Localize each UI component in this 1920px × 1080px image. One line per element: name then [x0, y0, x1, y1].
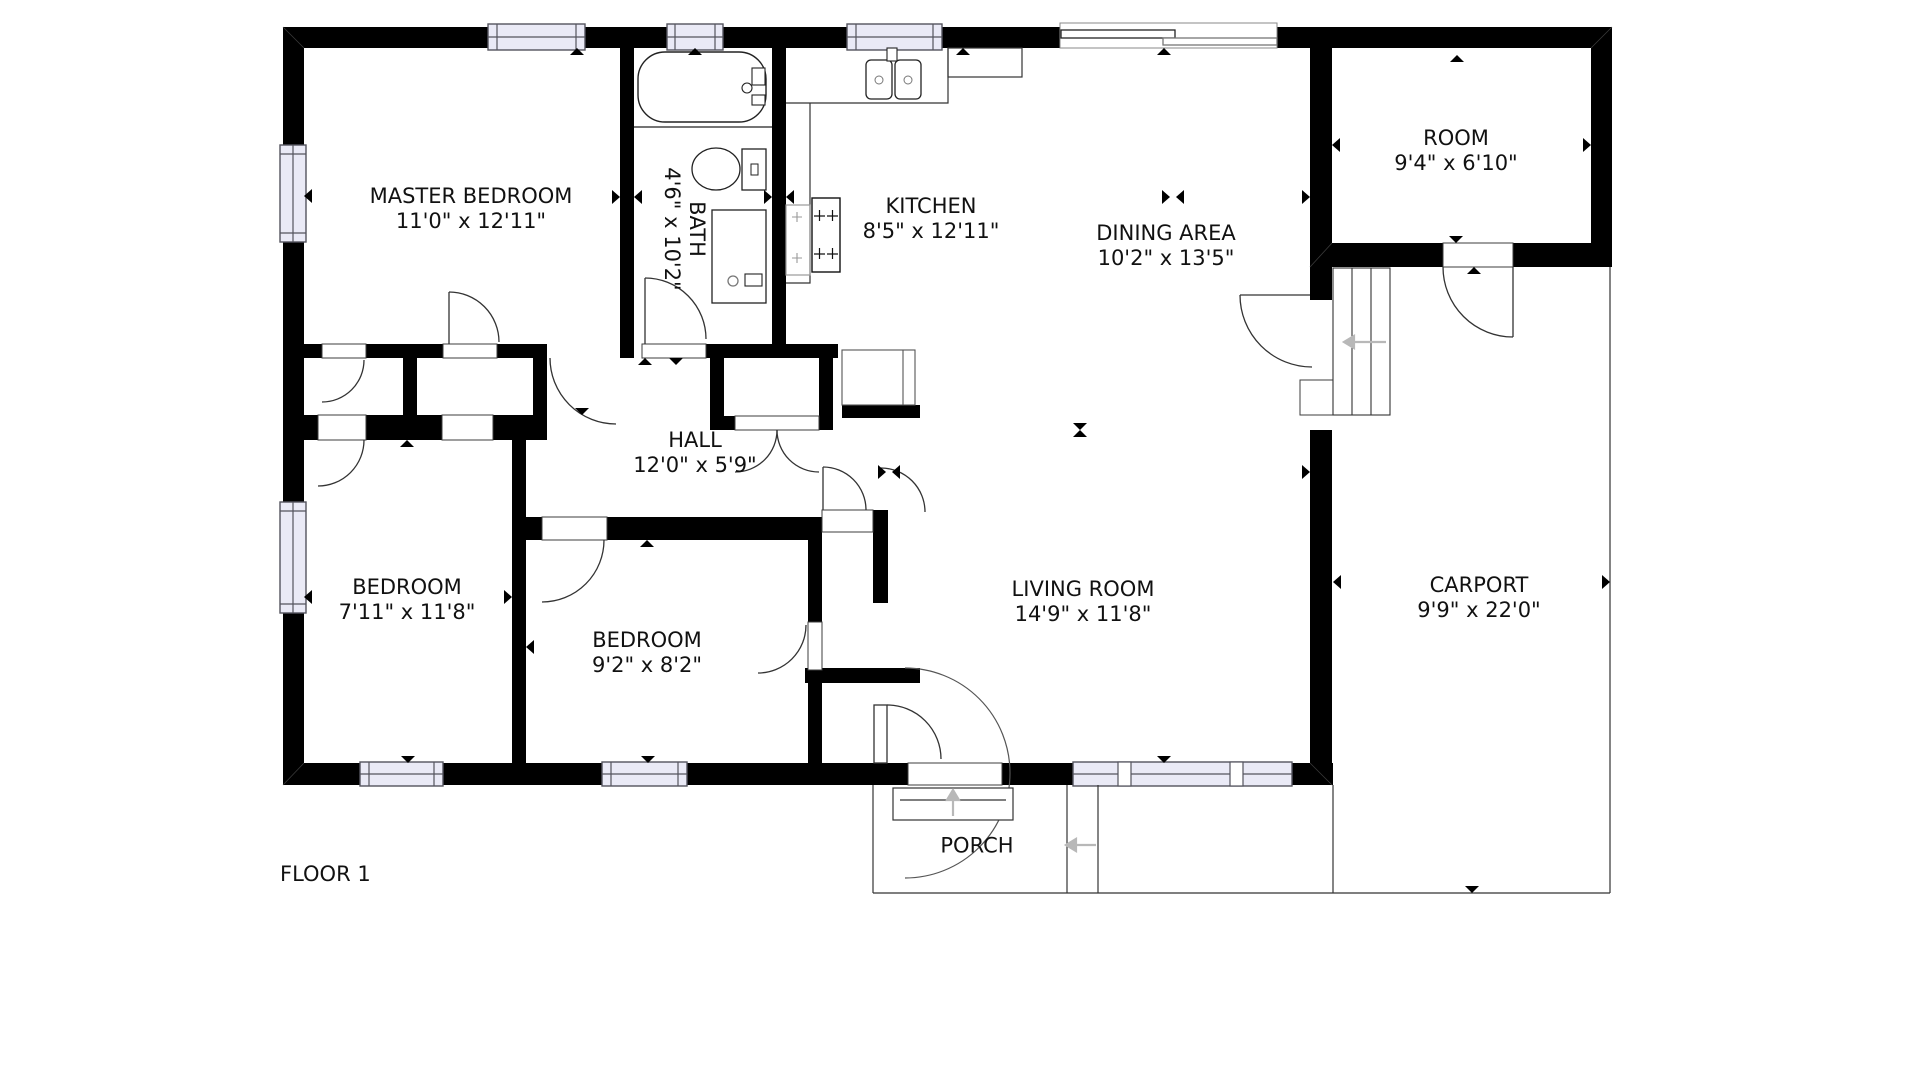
room-label-bedroom-left: BEDROOM 7'11" x 11'8": [339, 575, 476, 625]
room-name: BATH: [684, 167, 709, 290]
room-name: DINING AREA: [1096, 221, 1236, 246]
room-label-kitchen: KITCHEN 8'5" x 12'11": [863, 194, 1000, 244]
room-dims: 8'5" x 12'11": [863, 219, 1000, 244]
room-name: PORCH: [940, 834, 1013, 859]
room-dims: 10'2" x 13'5": [1096, 246, 1236, 271]
room-name: BEDROOM: [339, 575, 476, 600]
bathtub: [638, 52, 766, 122]
stove: [786, 198, 840, 275]
floor-plan-drawing: [0, 0, 1920, 1080]
room-label-bath: BATH 4'6" x 10'2": [659, 167, 709, 290]
bathroom-vanity: [712, 210, 766, 303]
floor-plan-canvas: MASTER BEDROOM 11'0" x 12'11" BATH 4'6" …: [0, 0, 1920, 1080]
room-dims: 11'0" x 12'11": [370, 209, 573, 234]
room-label-porch: PORCH: [940, 834, 1013, 859]
room-name: HALL: [633, 428, 756, 453]
room-label-bedroom-middle: BEDROOM 9'2" x 8'2": [592, 628, 702, 678]
room-label-carport: CARPORT 9'9" x 22'0": [1417, 573, 1540, 623]
room-dims: 14'9" x 11'8": [1012, 602, 1155, 627]
room-name: KITCHEN: [863, 194, 1000, 219]
room-name: CARPORT: [1417, 573, 1540, 598]
kitchen-sink: [866, 48, 921, 99]
shelf-closet: [842, 350, 915, 405]
room-name: MASTER BEDROOM: [370, 184, 573, 209]
room-dims: 9'2" x 8'2": [592, 653, 702, 678]
room-dims: 4'6" x 10'2": [659, 167, 684, 290]
room-label-living-room: LIVING ROOM 14'9" x 11'8": [1012, 577, 1155, 627]
room-name: LIVING ROOM: [1012, 577, 1155, 602]
room-label-room: ROOM 9'4" x 6'10": [1394, 126, 1517, 176]
room-label-master-bedroom: MASTER BEDROOM 11'0" x 12'11": [370, 184, 573, 234]
room-label-dining-area: DINING AREA 10'2" x 13'5": [1096, 221, 1236, 271]
room-label-hall: HALL 12'0" x 5'9": [633, 428, 756, 478]
room-dims: 12'0" x 5'9": [633, 453, 756, 478]
floor-title: FLOOR 1: [280, 862, 371, 886]
room-name: BEDROOM: [592, 628, 702, 653]
room-name: ROOM: [1394, 126, 1517, 151]
sliding-door: [1060, 23, 1277, 48]
room-dims: 7'11" x 11'8": [339, 600, 476, 625]
room-dims: 9'4" x 6'10": [1394, 151, 1517, 176]
room-dims: 9'9" x 22'0": [1417, 598, 1540, 623]
